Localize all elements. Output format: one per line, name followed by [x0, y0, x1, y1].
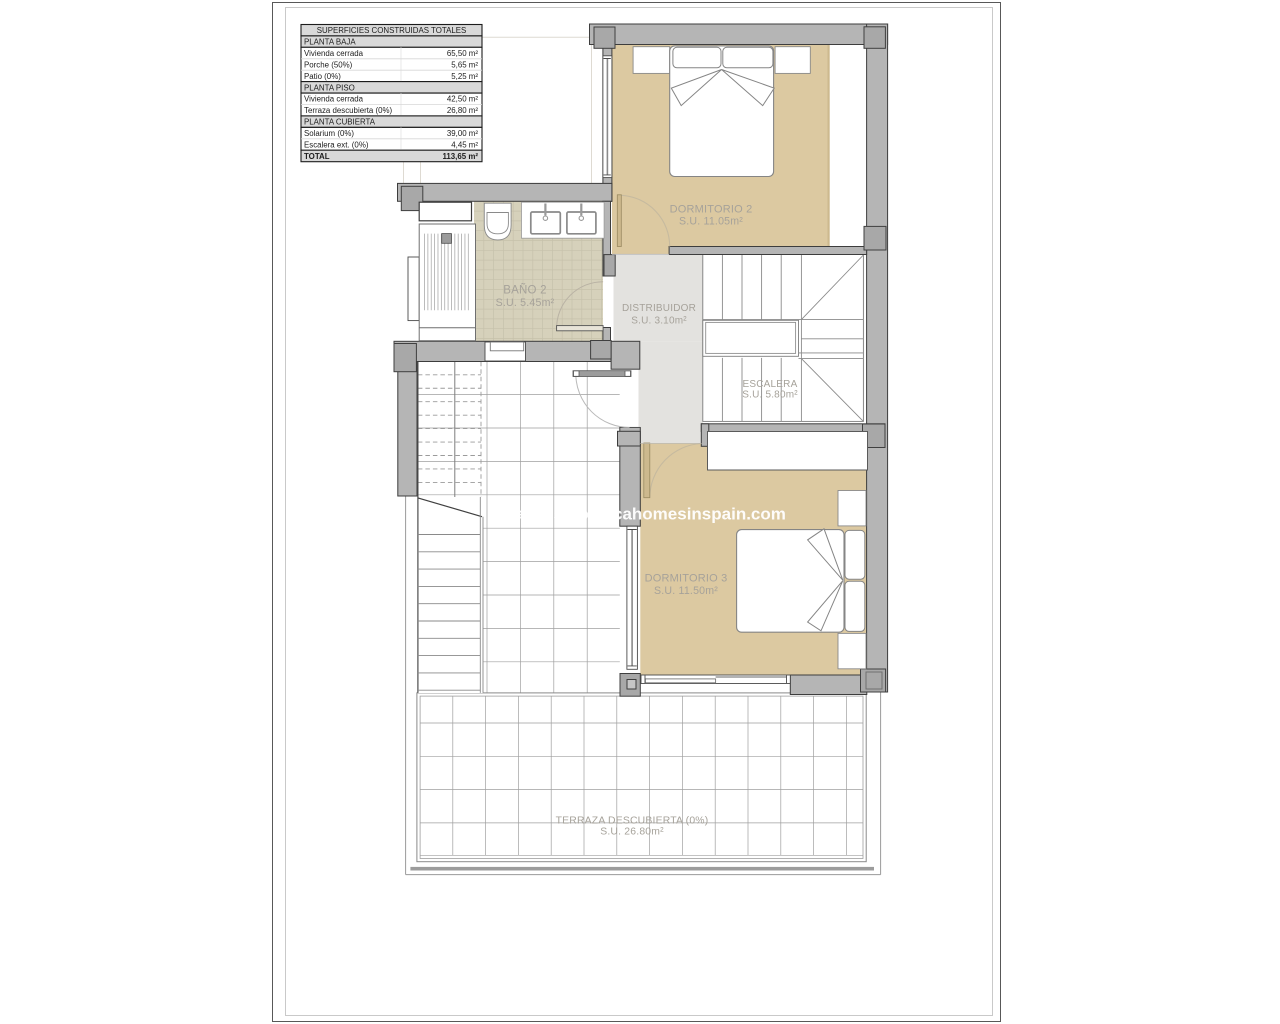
- svg-text:DISTRIBUIDOR: DISTRIBUIDOR: [622, 303, 696, 314]
- svg-text:BAÑO 2: BAÑO 2: [503, 284, 546, 297]
- svg-text:42,50 m²: 42,50 m²: [447, 95, 479, 104]
- svg-text:S.U. 11.50m²: S.U. 11.50m²: [654, 585, 718, 597]
- svg-text:PLANTA PISO: PLANTA PISO: [304, 83, 355, 92]
- svg-text:4,45 m²: 4,45 m²: [451, 140, 478, 149]
- svg-text:S.U. 5.45m²: S.U. 5.45m²: [496, 297, 555, 309]
- svg-text:DORMITORIO 2: DORMITORIO 2: [670, 203, 753, 215]
- svg-text:Patio (0%): Patio (0%): [304, 72, 341, 81]
- svg-text:PLANTA CUBIERTA: PLANTA CUBIERTA: [304, 118, 376, 127]
- svg-text:113,65 m²: 113,65 m²: [442, 152, 478, 161]
- svg-text:Solarium (0%): Solarium (0%): [304, 129, 354, 138]
- svg-text:Vivienda cerrada: Vivienda cerrada: [304, 49, 364, 58]
- svg-text:PLANTA BAJA: PLANTA BAJA: [304, 38, 356, 47]
- svg-text:DORMITORIO 3: DORMITORIO 3: [645, 572, 728, 584]
- svg-text:SUPERFICIES CONSTRUIDAS TOTALE: SUPERFICIES CONSTRUIDAS TOTALES: [317, 26, 467, 35]
- svg-text:S.U. 11.05m²: S.U. 11.05m²: [679, 216, 743, 228]
- svg-text:TOTAL: TOTAL: [304, 152, 330, 161]
- svg-text:S.U. 5.80m²: S.U. 5.80m²: [742, 390, 798, 401]
- svg-text:5,65 m²: 5,65 m²: [451, 60, 478, 69]
- svg-text:Porche (50%): Porche (50%): [304, 60, 353, 69]
- svg-text:Terraza descubierta (0%): Terraza descubierta (0%): [304, 106, 393, 115]
- svg-text:Vivienda cerrada: Vivienda cerrada: [304, 95, 364, 104]
- svg-text:S.U. 26.80m²: S.U. 26.80m²: [600, 827, 664, 838]
- svg-text:ESCALERA: ESCALERA: [743, 379, 798, 390]
- svg-text:lascostablancahomesinspain.com: lascostablancahomesinspain.com: [510, 505, 786, 524]
- svg-text:65,50 m²: 65,50 m²: [447, 49, 479, 58]
- svg-text:5,25 m²: 5,25 m²: [451, 72, 478, 81]
- svg-text:26,80 m²: 26,80 m²: [447, 106, 479, 115]
- svg-text:TERRAZA DESCUBIERTA (0%): TERRAZA DESCUBIERTA (0%): [556, 816, 709, 827]
- svg-text:Escalera ext. (0%): Escalera ext. (0%): [304, 140, 369, 149]
- svg-text:39,00 m²: 39,00 m²: [447, 129, 479, 138]
- svg-text:S.U. 3.10m²: S.U. 3.10m²: [631, 316, 687, 327]
